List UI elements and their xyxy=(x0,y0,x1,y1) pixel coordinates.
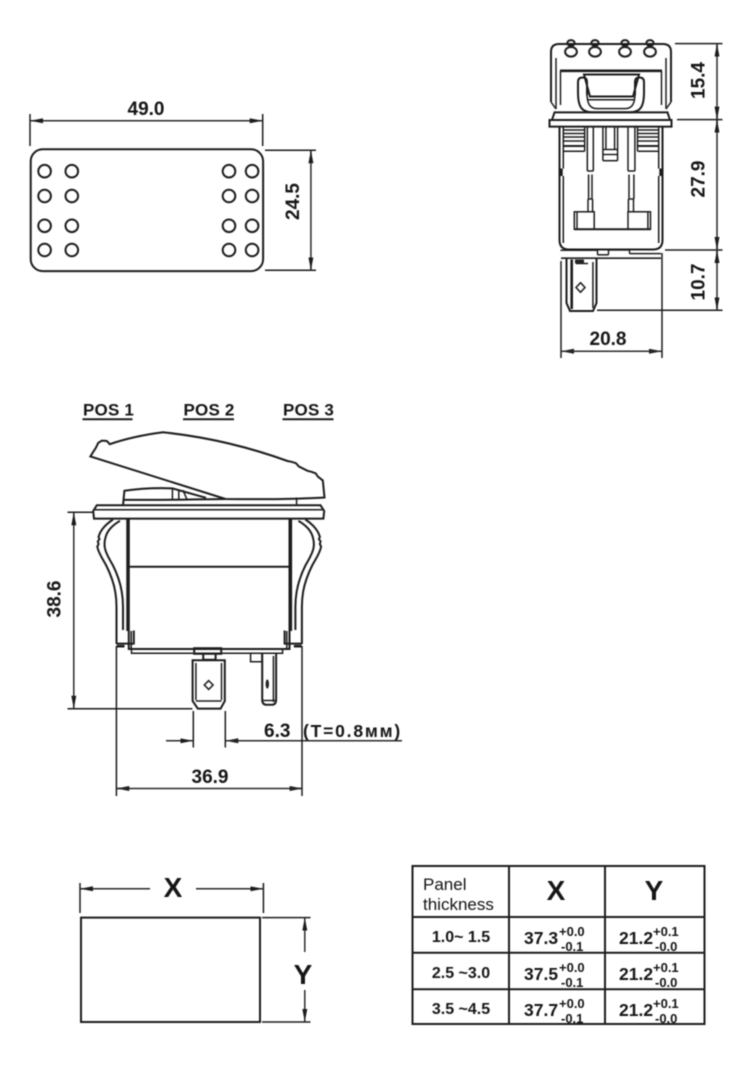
svg-text:-0.1: -0.1 xyxy=(561,975,583,990)
svg-text:1.0~ 1.5: 1.0~ 1.5 xyxy=(432,929,490,946)
svg-text:15.4: 15.4 xyxy=(689,62,710,99)
svg-text:-0.0: -0.0 xyxy=(655,939,677,954)
svg-text:(T=0.8мм): (T=0.8мм) xyxy=(303,721,402,741)
svg-text:X: X xyxy=(547,875,566,906)
svg-text:27.9: 27.9 xyxy=(689,161,710,198)
svg-text:49.0: 49.0 xyxy=(128,99,165,120)
svg-text:6.3: 6.3 xyxy=(264,721,290,742)
svg-text:+0.1: +0.1 xyxy=(653,996,679,1011)
svg-text:+0.0: +0.0 xyxy=(559,960,585,975)
svg-text:+0.1: +0.1 xyxy=(653,924,679,939)
svg-text:Y: Y xyxy=(294,959,313,990)
svg-text:37.3: 37.3 xyxy=(524,928,558,948)
svg-text:thickness: thickness xyxy=(423,895,494,914)
svg-text:21.2: 21.2 xyxy=(619,928,653,948)
svg-text:20.8: 20.8 xyxy=(590,329,627,350)
svg-text:21.2: 21.2 xyxy=(619,964,653,984)
svg-text:38.6: 38.6 xyxy=(45,581,66,618)
svg-text:24.5: 24.5 xyxy=(283,183,304,220)
svg-text:-0.1: -0.1 xyxy=(561,1011,583,1026)
svg-text:+0.0: +0.0 xyxy=(559,924,585,939)
svg-text:21.2: 21.2 xyxy=(619,1000,653,1020)
svg-text:37.5: 37.5 xyxy=(524,964,558,984)
svg-text:-0.0: -0.0 xyxy=(655,1011,677,1026)
svg-text:POS 2: POS 2 xyxy=(184,401,235,420)
svg-text:Panel: Panel xyxy=(423,875,466,894)
svg-text:POS 3: POS 3 xyxy=(283,401,334,420)
svg-text:Y: Y xyxy=(645,875,664,906)
svg-text:37.7: 37.7 xyxy=(524,1000,558,1020)
svg-text:10.7: 10.7 xyxy=(689,264,710,301)
svg-text:3.5 ~4.5: 3.5 ~4.5 xyxy=(432,1001,490,1018)
svg-text:X: X xyxy=(164,872,183,903)
svg-text:2.5 ~3.0: 2.5 ~3.0 xyxy=(432,965,490,982)
svg-text:36.9: 36.9 xyxy=(192,767,229,788)
svg-text:POS 1: POS 1 xyxy=(83,401,134,420)
svg-text:+0.0: +0.0 xyxy=(559,996,585,1011)
svg-text:-0.0: -0.0 xyxy=(655,975,677,990)
svg-text:-0.1: -0.1 xyxy=(561,939,583,954)
svg-text:+0.1: +0.1 xyxy=(653,960,679,975)
